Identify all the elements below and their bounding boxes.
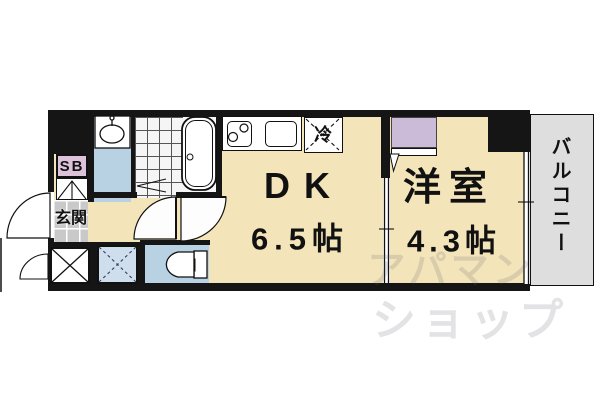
closet-door-mark <box>390 154 399 171</box>
balcony-label: バルコニー <box>549 136 569 256</box>
stove-burners <box>229 124 249 142</box>
entrance-label: 玄関 <box>55 211 87 227</box>
toilet <box>166 251 207 278</box>
dk-door-swing <box>181 197 226 241</box>
storage-white-cross <box>52 249 88 282</box>
watermark-line1: アパマン <box>367 252 534 290</box>
dk-size-label: 6.5帖 <box>251 224 349 255</box>
bathtub <box>182 117 216 190</box>
dk-label: DK <box>264 168 344 204</box>
storage-blue-cross <box>99 247 136 282</box>
washbasin <box>95 116 130 148</box>
shoe-cabinet-mark <box>58 181 86 199</box>
western-room-label: 洋室 <box>403 169 495 207</box>
floorplan-canvas: SB <box>0 0 600 400</box>
watermark-line2: ショップ <box>372 299 568 343</box>
washroom-door-swing <box>134 197 176 239</box>
meter-box-door-swing <box>20 254 48 279</box>
bath-folding-door <box>137 179 166 192</box>
refrigerator-label: 冷 <box>314 126 332 144</box>
front-door-swing <box>7 193 50 238</box>
